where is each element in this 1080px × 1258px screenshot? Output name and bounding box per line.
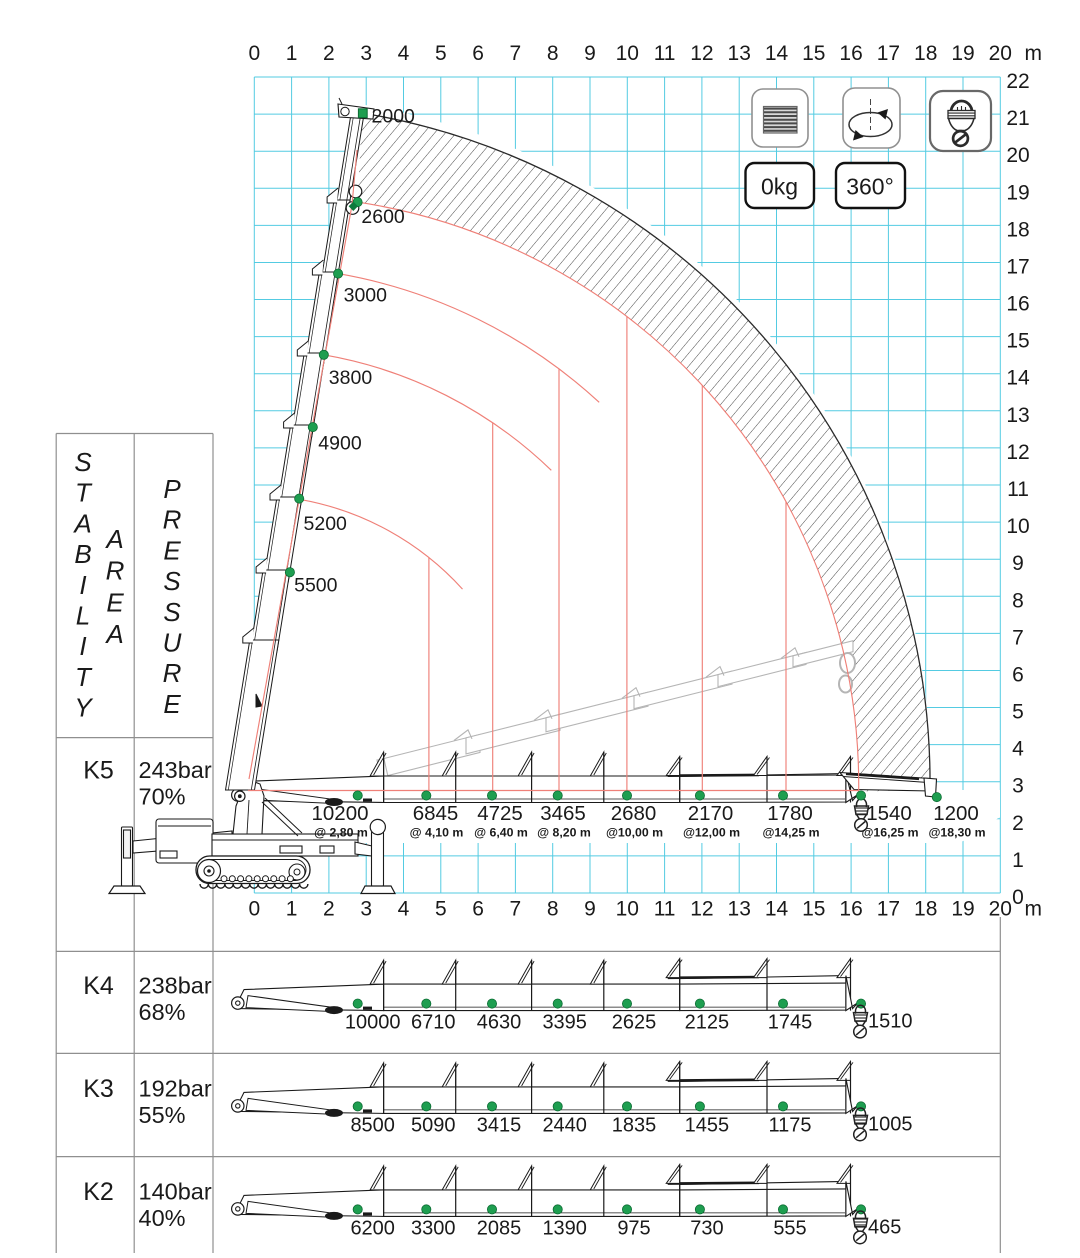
svg-text:10: 10 (1006, 515, 1029, 538)
svg-text:4630: 4630 (477, 1012, 522, 1034)
svg-text:R: R (106, 556, 125, 586)
svg-text:2000: 2000 (372, 106, 416, 128)
svg-text:10: 10 (616, 898, 639, 921)
svg-text:6200: 6200 (350, 1217, 395, 1239)
svg-text:5200: 5200 (304, 513, 348, 535)
svg-text:243bar: 243bar (139, 757, 212, 783)
svg-text:0kg: 0kg (761, 174, 798, 200)
svg-text:5500: 5500 (294, 574, 338, 596)
svg-text:U: U (163, 628, 182, 658)
svg-text:1510: 1510 (868, 1011, 913, 1033)
svg-text:16: 16 (839, 898, 862, 921)
svg-text:E: E (163, 689, 181, 719)
svg-text:21: 21 (1006, 107, 1029, 130)
svg-text:6: 6 (1012, 664, 1024, 687)
svg-text:5: 5 (1012, 701, 1024, 724)
svg-text:B: B (74, 539, 91, 569)
svg-text:2: 2 (323, 42, 335, 65)
svg-text:12: 12 (1006, 441, 1029, 464)
svg-text:@ 8,20 m: @ 8,20 m (537, 826, 591, 840)
svg-text:R: R (163, 505, 182, 535)
svg-text:11: 11 (1007, 478, 1029, 501)
svg-text:1175: 1175 (768, 1114, 811, 1136)
svg-text:1780: 1780 (767, 802, 813, 825)
svg-text:2600: 2600 (361, 206, 405, 228)
svg-text:P: P (163, 474, 181, 504)
svg-text:K4: K4 (83, 972, 114, 1000)
svg-text:14: 14 (1006, 367, 1030, 390)
svg-text:6: 6 (472, 898, 484, 921)
svg-text:I: I (79, 570, 86, 600)
svg-text:3395: 3395 (542, 1012, 587, 1034)
svg-text:1390: 1390 (542, 1217, 587, 1239)
svg-text:1005: 1005 (868, 1113, 913, 1135)
svg-text:15: 15 (1006, 330, 1029, 353)
svg-text:7: 7 (1012, 626, 1024, 649)
svg-text:20: 20 (989, 898, 1012, 921)
svg-text:T: T (75, 478, 93, 508)
svg-text:8: 8 (1012, 589, 1024, 612)
svg-text:A: A (104, 524, 123, 554)
svg-text:465: 465 (868, 1216, 901, 1238)
svg-text:E: E (106, 587, 124, 617)
svg-text:1540: 1540 (866, 802, 912, 825)
svg-text:13: 13 (728, 898, 751, 921)
svg-text:A: A (104, 619, 123, 649)
svg-text:3300: 3300 (411, 1217, 456, 1239)
svg-text:1: 1 (1012, 849, 1024, 872)
svg-text:E: E (163, 535, 181, 565)
svg-text:20: 20 (1006, 144, 1029, 167)
svg-text:4900: 4900 (318, 433, 362, 455)
svg-text:2680: 2680 (611, 802, 657, 825)
svg-text:1200: 1200 (933, 802, 979, 825)
svg-text:16: 16 (1006, 293, 1029, 316)
svg-text:@ 6,40 m: @ 6,40 m (474, 826, 528, 840)
svg-text:4725: 4725 (477, 802, 523, 825)
svg-text:Y: Y (74, 693, 93, 723)
svg-text:10: 10 (616, 42, 639, 65)
svg-text:0: 0 (248, 898, 260, 921)
svg-text:4: 4 (1012, 738, 1024, 761)
svg-text:1455: 1455 (685, 1114, 730, 1136)
svg-text:975: 975 (617, 1217, 650, 1239)
svg-text:8: 8 (547, 42, 559, 65)
svg-text:730: 730 (690, 1217, 723, 1239)
svg-text:2125: 2125 (685, 1012, 730, 1034)
svg-text:@ 2,80 m: @ 2,80 m (314, 826, 368, 840)
svg-text:14: 14 (765, 898, 789, 921)
svg-text:40%: 40% (139, 1205, 186, 1231)
svg-text:4: 4 (398, 898, 410, 921)
svg-text:11: 11 (654, 42, 676, 65)
svg-text:192bar: 192bar (139, 1076, 212, 1102)
svg-text:@10,00 m: @10,00 m (606, 826, 663, 840)
svg-text:m: m (1025, 898, 1043, 921)
svg-text:555: 555 (773, 1217, 806, 1239)
svg-text:I: I (79, 631, 86, 661)
svg-text:9: 9 (584, 42, 596, 65)
svg-text:17: 17 (877, 898, 900, 921)
svg-text:20: 20 (989, 42, 1012, 65)
svg-text:@ 4,10 m: @ 4,10 m (410, 826, 464, 840)
svg-text:3800: 3800 (329, 367, 373, 389)
svg-text:17: 17 (877, 42, 900, 65)
svg-text:2170: 2170 (688, 802, 734, 825)
svg-text:18: 18 (914, 898, 937, 921)
svg-text:L: L (76, 601, 90, 631)
svg-text:15: 15 (802, 898, 825, 921)
svg-text:12: 12 (690, 898, 713, 921)
svg-text:@14,25 m: @14,25 m (762, 826, 819, 840)
svg-text:1: 1 (286, 898, 298, 921)
svg-text:K5: K5 (83, 757, 114, 785)
svg-text:2085: 2085 (477, 1217, 522, 1239)
svg-text:R: R (163, 658, 182, 688)
svg-text:@18,30 m: @18,30 m (928, 826, 985, 840)
svg-text:7: 7 (510, 42, 522, 65)
svg-text:5: 5 (435, 42, 447, 65)
svg-text:S: S (74, 447, 92, 477)
svg-text:13: 13 (1006, 404, 1029, 427)
svg-text:1: 1 (286, 42, 298, 65)
svg-text:55%: 55% (139, 1102, 186, 1128)
svg-text:16: 16 (839, 42, 862, 65)
svg-text:140bar: 140bar (139, 1179, 212, 1205)
svg-text:1835: 1835 (612, 1114, 657, 1136)
svg-text:A: A (72, 508, 91, 538)
svg-text:3: 3 (1012, 775, 1024, 798)
svg-text:18: 18 (914, 42, 937, 65)
svg-text:22: 22 (1006, 70, 1029, 93)
svg-text:2625: 2625 (612, 1012, 657, 1034)
svg-text:238bar: 238bar (139, 973, 212, 999)
svg-text:@16,25 m: @16,25 m (861, 826, 918, 840)
svg-text:5: 5 (435, 898, 447, 921)
svg-text:11: 11 (654, 898, 676, 921)
svg-text:3000: 3000 (344, 285, 388, 307)
svg-text:19: 19 (951, 898, 974, 921)
svg-text:68%: 68% (139, 999, 186, 1025)
svg-text:0: 0 (1012, 886, 1024, 909)
svg-text:6710: 6710 (411, 1012, 456, 1034)
svg-text:S: S (163, 566, 181, 596)
svg-text:2: 2 (323, 898, 335, 921)
svg-text:T: T (75, 662, 93, 692)
svg-text:9: 9 (584, 898, 596, 921)
svg-text:3465: 3465 (540, 802, 586, 825)
svg-text:19: 19 (1006, 181, 1029, 204)
svg-text:3: 3 (360, 898, 372, 921)
svg-text:4: 4 (398, 42, 410, 65)
svg-text:13: 13 (728, 42, 751, 65)
svg-text:8500: 8500 (350, 1114, 395, 1136)
svg-text:0: 0 (248, 42, 260, 65)
svg-text:70%: 70% (139, 784, 186, 810)
svg-text:10000: 10000 (345, 1012, 401, 1034)
svg-text:5090: 5090 (411, 1114, 456, 1136)
svg-text:2: 2 (1012, 812, 1024, 835)
svg-text:9: 9 (1012, 552, 1024, 575)
svg-text:K2: K2 (83, 1178, 114, 1206)
svg-text:S: S (163, 597, 181, 627)
svg-text:6845: 6845 (413, 802, 459, 825)
svg-text:17: 17 (1006, 256, 1029, 279)
svg-text:15: 15 (802, 42, 825, 65)
svg-text:7: 7 (510, 898, 522, 921)
svg-text:360°: 360° (846, 174, 894, 200)
svg-text:3: 3 (360, 42, 372, 65)
svg-text:3415: 3415 (477, 1114, 522, 1136)
svg-text:1745: 1745 (768, 1012, 813, 1034)
svg-text:K3: K3 (83, 1075, 114, 1103)
svg-text:12: 12 (690, 42, 713, 65)
svg-text:8: 8 (547, 898, 559, 921)
svg-text:2440: 2440 (542, 1114, 587, 1136)
svg-text:6: 6 (472, 42, 484, 65)
svg-text:m: m (1025, 42, 1043, 65)
svg-text:@12,00 m: @12,00 m (683, 826, 740, 840)
svg-text:10200: 10200 (311, 802, 368, 825)
svg-text:14: 14 (765, 42, 789, 65)
svg-text:18: 18 (1006, 218, 1029, 241)
svg-text:19: 19 (951, 42, 974, 65)
